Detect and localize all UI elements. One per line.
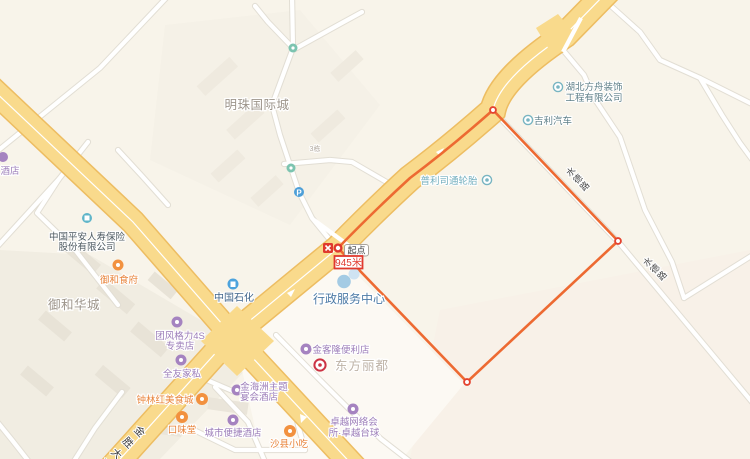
- svg-text:口味堂: 口味堂: [168, 424, 197, 436]
- svg-text:东方丽都: 东方丽都: [335, 358, 389, 373]
- svg-text:中国石化: 中国石化: [214, 291, 254, 304]
- svg-text:945米: 945米: [335, 256, 362, 269]
- svg-text:所·卓越台球: 所·卓越台球: [329, 427, 380, 439]
- svg-text:沙县小吃: 沙县小吃: [270, 438, 309, 450]
- svg-text:普利司通轮胎: 普利司通轮胎: [420, 175, 478, 187]
- svg-text:专卖店: 专卖店: [166, 340, 195, 352]
- svg-text:全友家私: 全友家私: [163, 368, 202, 380]
- svg-text:宴会酒店: 宴会酒店: [240, 391, 278, 403]
- svg-text:工程有限公司: 工程有限公司: [565, 92, 622, 104]
- svg-text:明珠国际城: 明珠国际城: [224, 98, 289, 112]
- svg-text:P: P: [296, 189, 302, 198]
- svg-text:城市便捷酒店: 城市便捷酒店: [204, 427, 261, 439]
- svg-text:起点: 起点: [347, 246, 365, 256]
- svg-text:御和食府: 御和食府: [100, 274, 139, 286]
- svg-text:御和华城: 御和华城: [48, 297, 100, 312]
- svg-text:钟林红美食城: 钟林红美食城: [136, 394, 194, 406]
- svg-text:湖北方舟装饰: 湖北方舟装饰: [565, 81, 622, 93]
- svg-text:酒店: 酒店: [0, 165, 19, 177]
- svg-text:卓越网络会: 卓越网络会: [330, 416, 378, 428]
- svg-text:3栋: 3栋: [310, 144, 321, 153]
- svg-text:吉利汽车: 吉利汽车: [534, 115, 572, 127]
- svg-text:金客隆便利店: 金客隆便利店: [312, 344, 369, 356]
- svg-text:股份有限公司: 股份有限公司: [58, 241, 115, 253]
- svg-text:行政服务中心: 行政服务中心: [313, 291, 385, 306]
